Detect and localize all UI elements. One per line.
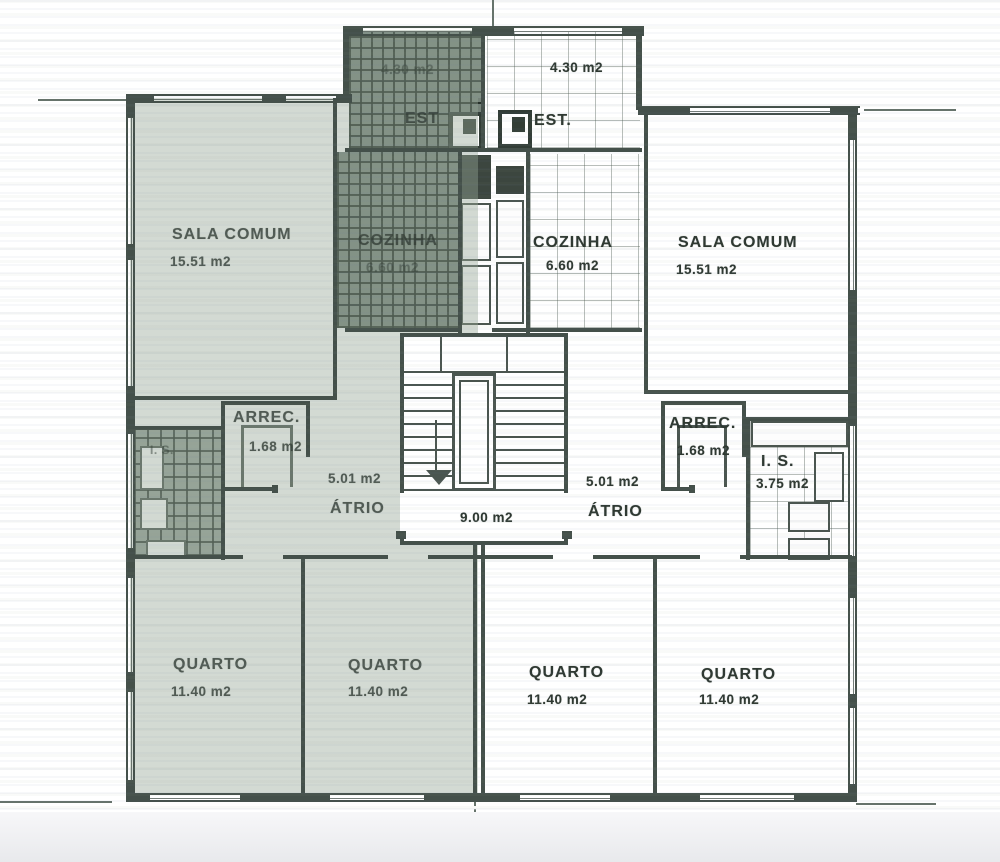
reference-line	[864, 109, 956, 111]
wall	[746, 417, 750, 560]
room-name-quarto-1-right: QUARTO	[529, 664, 604, 682]
stair-tread	[496, 462, 564, 464]
wall	[301, 559, 305, 793]
stair-direction-arrow	[426, 470, 452, 485]
bathroom-fixture	[814, 452, 844, 502]
stair-tread	[404, 410, 452, 412]
reference-line	[0, 801, 112, 803]
wall	[126, 94, 135, 118]
stair-tread	[496, 397, 564, 399]
room-name-quarto-2-right: QUARTO	[701, 666, 776, 684]
wall	[481, 30, 485, 150]
wall	[794, 793, 857, 802]
wall	[221, 487, 274, 491]
wall	[343, 26, 349, 98]
room-area-arrec-left: 1.68 m2	[249, 439, 302, 454]
room-area-cozinha-left: 6.60 m2	[366, 260, 419, 275]
door-jamb	[396, 531, 406, 539]
room-name-sala-comum-left: SALA COMUM	[172, 226, 292, 244]
room-area-quarto-2-left: 11.40 m2	[348, 684, 408, 699]
room-name-arrec-right: ARREC.	[669, 415, 736, 433]
wall	[345, 148, 642, 152]
window	[126, 434, 135, 548]
room-name-atrio-right: ÁTRIO	[588, 503, 643, 521]
window	[150, 793, 240, 802]
bathroom-fixture	[788, 502, 830, 532]
window	[154, 94, 262, 103]
duct-compartment	[496, 200, 524, 258]
stair-tread	[404, 423, 452, 425]
room-area-quarto-2-right: 11.40 m2	[699, 692, 759, 707]
wall	[526, 150, 530, 336]
wall	[221, 401, 310, 405]
paper-edge-band	[0, 812, 1000, 862]
wall	[653, 559, 657, 793]
reference-line	[38, 99, 128, 101]
axis-line	[492, 0, 494, 28]
window	[520, 793, 610, 802]
window	[126, 692, 135, 780]
wall	[644, 390, 852, 394]
wall	[126, 793, 150, 802]
reference-line	[856, 803, 936, 805]
party-wall	[473, 545, 477, 793]
wall	[458, 150, 462, 336]
stair-tread	[496, 384, 564, 386]
room-area-quarto-1-right: 11.40 m2	[527, 692, 587, 707]
room-area-atrio-left: 5.01 m2	[328, 471, 381, 486]
stair-tread	[404, 436, 452, 438]
door-jamb	[562, 531, 572, 539]
wall	[126, 244, 135, 260]
stair-line	[440, 337, 442, 373]
window	[363, 26, 472, 36]
room-name-quarto-1-left: QUARTO	[173, 656, 248, 674]
wall	[240, 793, 330, 802]
left-apartment-tint	[130, 98, 478, 335]
wall	[428, 555, 553, 559]
stair-line	[404, 489, 564, 491]
stair-line	[506, 337, 508, 373]
window	[286, 94, 336, 103]
room-name-sala-comum-right: SALA COMUM	[678, 234, 798, 252]
wall	[472, 26, 514, 36]
window	[848, 598, 857, 694]
stair-tread	[496, 449, 564, 451]
wall	[661, 401, 746, 405]
room-area-est-right: 4.30 m2	[550, 60, 603, 75]
wall	[848, 290, 857, 426]
wall	[492, 328, 642, 332]
room-area-cozinha-right: 6.60 m2	[546, 258, 599, 273]
stair-tread	[404, 449, 452, 451]
wall	[610, 793, 700, 802]
window	[126, 260, 135, 386]
wall	[564, 333, 568, 493]
wall	[848, 694, 857, 708]
window	[690, 106, 830, 115]
duct-compartment	[496, 262, 524, 324]
wall	[130, 426, 225, 430]
room-name-cozinha-left: COZINHA	[358, 232, 438, 250]
room-area-atrio-right: 5.01 m2	[586, 474, 639, 489]
wall	[400, 333, 568, 337]
room-area-quarto-1-left: 11.40 m2	[171, 684, 231, 699]
room-name-est-left: EST	[405, 110, 439, 128]
stair-tread	[404, 397, 452, 399]
wall	[848, 106, 857, 140]
room-area-est-left: 4.30 m2	[381, 62, 434, 77]
wall	[400, 333, 404, 493]
wall	[424, 793, 520, 802]
party-wall	[481, 545, 485, 793]
wall	[644, 108, 648, 394]
wall	[740, 555, 852, 559]
wall	[130, 555, 243, 559]
stair-tread	[496, 475, 564, 477]
wall	[262, 94, 286, 103]
stair-tread	[496, 436, 564, 438]
door-jamb	[689, 485, 695, 493]
room-area-sala-comum-right: 15.51 m2	[676, 262, 737, 277]
window	[514, 26, 622, 36]
wall	[283, 555, 388, 559]
stair-tread	[404, 384, 452, 386]
est-symbol-icon	[498, 110, 532, 148]
window	[700, 793, 794, 802]
stair-tread	[404, 462, 452, 464]
window	[126, 118, 135, 244]
room-name-is-left: I. S.	[150, 443, 174, 457]
stair-tread	[496, 423, 564, 425]
room-name-quarto-2-left: QUARTO	[348, 657, 423, 675]
wall	[126, 672, 135, 692]
door-jamb	[272, 485, 278, 493]
stair-tread	[496, 410, 564, 412]
room-name-is-right: I. S.	[761, 453, 794, 471]
window	[848, 140, 857, 290]
room-area-is-right: 3.75 m2	[756, 476, 809, 491]
bathroom-counter	[751, 421, 848, 447]
wall	[661, 401, 665, 491]
wall	[126, 548, 135, 578]
wall	[661, 487, 691, 491]
wall	[636, 26, 642, 110]
window	[848, 708, 857, 784]
stairwell-area-label: 9.00 m2	[460, 510, 513, 525]
wall	[746, 417, 852, 421]
window	[126, 578, 135, 672]
room-name-cozinha-right: COZINHA	[533, 234, 613, 252]
room-name-arrec-left: ARREC.	[233, 409, 300, 427]
stair-newel-inner	[459, 380, 489, 484]
room-name-atrio-left: ÁTRIO	[330, 500, 385, 518]
wall	[848, 556, 857, 598]
floor-plan-scan: SALA COMUM 15.51 m2 4.30 m2 EST COZINHA …	[0, 0, 1000, 862]
wall	[130, 396, 335, 400]
duct-shaft	[496, 166, 524, 194]
window	[330, 793, 424, 802]
stair-tread	[404, 475, 452, 477]
wall	[221, 426, 225, 560]
room-name-est-right: EST.	[534, 112, 572, 130]
room-area-arrec-right: 1.68 m2	[677, 443, 730, 458]
wall	[306, 401, 310, 457]
window	[848, 426, 857, 556]
room-area-sala-comum-left: 15.51 m2	[170, 254, 231, 269]
wall	[333, 98, 337, 400]
wall	[593, 555, 700, 559]
wall	[345, 328, 462, 332]
